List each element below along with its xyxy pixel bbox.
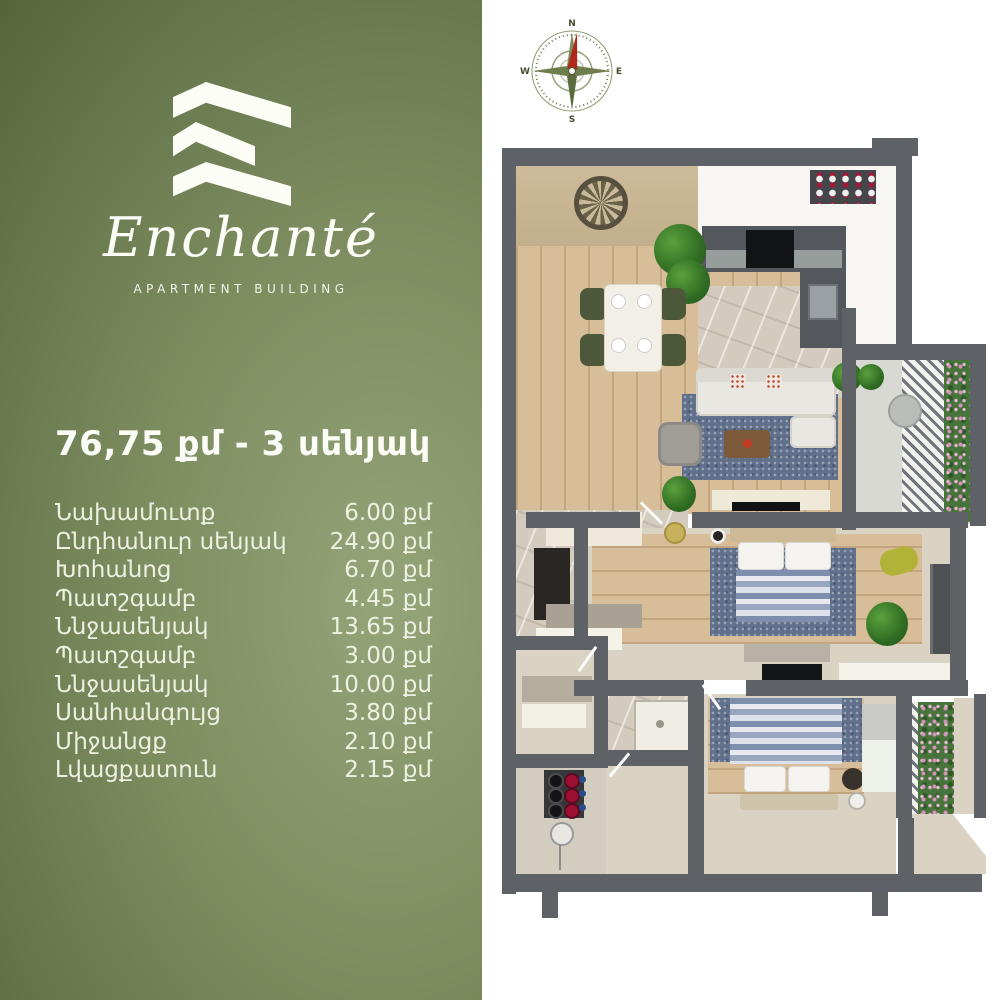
pipe-small	[579, 804, 586, 811]
bed1-duvet	[736, 570, 830, 622]
compass-west-label: W	[520, 67, 530, 77]
hall-counter	[546, 604, 642, 628]
room-area: 3.80 քմ	[344, 699, 432, 728]
plate	[637, 294, 652, 309]
logo-chevron-middle	[173, 122, 255, 166]
room-name: Նախամուտք	[55, 499, 215, 528]
table-row: Խոհանոց6.70 քմ	[55, 556, 432, 585]
poster: Enchanté APARTMENT BUILDING 76,75 քմ - 3…	[0, 0, 1000, 1000]
table-row: Միջանցք2.10 քմ	[55, 728, 432, 757]
table-row: Ննջասենյակ10.00 քմ	[55, 671, 432, 700]
corridor-floor	[606, 766, 688, 874]
armchair	[658, 422, 702, 466]
wall	[974, 694, 986, 818]
plate	[637, 338, 652, 353]
room-area: 3.00 քմ	[344, 642, 432, 671]
table-row: Նախամուտք6.00 քմ	[55, 499, 432, 528]
water-meter	[550, 822, 574, 846]
table-row: Ննջասենյակ13.65 քմ	[55, 613, 432, 642]
wall	[692, 512, 968, 528]
dining-chair	[658, 288, 686, 320]
table-row: Սանհանգույց3.80 քմ	[55, 699, 432, 728]
pipe	[564, 803, 580, 819]
floor-medallion	[574, 176, 628, 230]
compass-east-label: E	[616, 67, 622, 77]
decor-bowl	[743, 439, 752, 448]
room-name: Միջանցք	[55, 728, 167, 757]
wall	[502, 874, 982, 892]
pipe-small	[579, 776, 586, 783]
flower-hedge-lower	[918, 702, 954, 814]
bed1-headboard	[730, 526, 836, 542]
bed2-pillow	[788, 766, 830, 792]
room-area: 2.15 քմ	[344, 756, 432, 785]
plate	[611, 294, 626, 309]
listing-title: 76,75 քմ - 3 սենյակ	[55, 424, 465, 464]
balcony-table	[888, 394, 922, 428]
wall	[512, 148, 904, 166]
cooktop	[746, 230, 794, 268]
room-area: 2.10 քմ	[344, 728, 432, 757]
wall	[872, 892, 888, 916]
room-name: Պատշգամբ	[55, 585, 196, 614]
throw-pillow	[766, 374, 782, 388]
flower-hedge-upper	[944, 360, 972, 522]
bed1-pillow	[785, 542, 831, 570]
floor-plan	[498, 138, 990, 938]
tv	[732, 502, 800, 511]
bed2-pillow	[744, 766, 786, 792]
wall	[898, 818, 914, 876]
pipe	[548, 788, 564, 804]
room-table: Նախամուտք6.00 քմ Ընդհանուր սենյակ24.90 ք…	[55, 499, 432, 785]
wall	[746, 680, 968, 696]
pipe	[564, 773, 580, 789]
sofa-chaise	[790, 416, 836, 448]
lamp	[848, 792, 866, 810]
pipe	[548, 773, 564, 789]
room-name: Սանհանգույց	[55, 699, 221, 728]
wall	[526, 512, 640, 528]
wall	[594, 636, 608, 768]
living-plant-small	[662, 476, 696, 512]
wall	[502, 148, 516, 894]
kitchen-sink	[808, 284, 838, 320]
bed1-pillow	[738, 542, 784, 570]
wall	[574, 680, 704, 696]
wall	[542, 892, 558, 918]
balcony2-floor	[912, 814, 986, 874]
balcony1-decking	[902, 360, 946, 524]
wall	[852, 344, 986, 360]
laptop	[762, 664, 822, 681]
round-sink	[664, 522, 686, 544]
compass-north-label: N	[568, 19, 576, 29]
room-name: Խոհանոց	[55, 556, 171, 585]
room-name: Ննջասենյակ	[55, 613, 209, 642]
wardrobe-top	[862, 704, 896, 738]
wall	[574, 528, 588, 644]
room-area: 13.65 քմ	[330, 613, 432, 642]
room-name: Ընդհանուր սենյակ	[55, 528, 287, 557]
room-name: Լվացքատուն	[55, 756, 217, 785]
bed2-duvet	[730, 698, 842, 764]
bed2-bench	[740, 794, 838, 810]
wall	[688, 694, 704, 876]
dining-chair	[658, 334, 686, 366]
nightstand	[842, 768, 864, 790]
room-area: 10.00 քմ	[330, 671, 432, 700]
bathroom-cabinet	[522, 704, 586, 728]
balcony-plant	[858, 364, 884, 390]
wall-clock	[710, 528, 726, 544]
wall	[516, 754, 608, 768]
brand-tagline: APARTMENT BUILDING	[0, 282, 482, 296]
table-row: Ընդհանուր սենյակ24.90 քմ	[55, 528, 432, 557]
table-row: Պատշգամբ3.00 քմ	[55, 642, 432, 671]
shower-drain	[656, 720, 664, 728]
compass-south-label: S	[569, 115, 575, 125]
room-area: 24.90 քմ	[330, 528, 432, 557]
pipe-small	[579, 790, 586, 797]
wardrobe-bottom	[862, 738, 896, 792]
building-logo-icon	[173, 82, 291, 206]
room-name: Պատշգամբ	[55, 642, 196, 671]
logo-chevron-bottom	[173, 162, 291, 206]
brand-name: Enchanté	[0, 206, 482, 269]
room-area: 6.00 քմ	[344, 499, 432, 528]
plate	[611, 338, 626, 353]
throw-pillow	[730, 374, 746, 388]
room-name: Ննջասենյակ	[55, 671, 209, 700]
logo-chevron-top	[173, 82, 291, 128]
compass-rose-icon: N S W E	[505, 14, 640, 126]
table-row: Պատշգամբ4.45 քմ	[55, 585, 432, 614]
info-panel: Enchanté APARTMENT BUILDING 76,75 քմ - 3…	[0, 0, 482, 1000]
room-area: 6.70 քմ	[344, 556, 432, 585]
pipe	[548, 803, 564, 819]
pipe	[564, 788, 580, 804]
wall	[896, 696, 912, 818]
room-area: 4.45 քմ	[344, 585, 432, 614]
wine-rack	[810, 170, 876, 204]
desk	[744, 644, 830, 662]
wall	[842, 308, 856, 530]
water-pipe-line	[559, 844, 561, 870]
wall	[970, 356, 986, 526]
wall	[950, 528, 966, 680]
wall	[896, 148, 912, 360]
table-row: Լվացքատուն2.15 քմ	[55, 756, 432, 785]
bedroom1-plant	[866, 602, 908, 646]
